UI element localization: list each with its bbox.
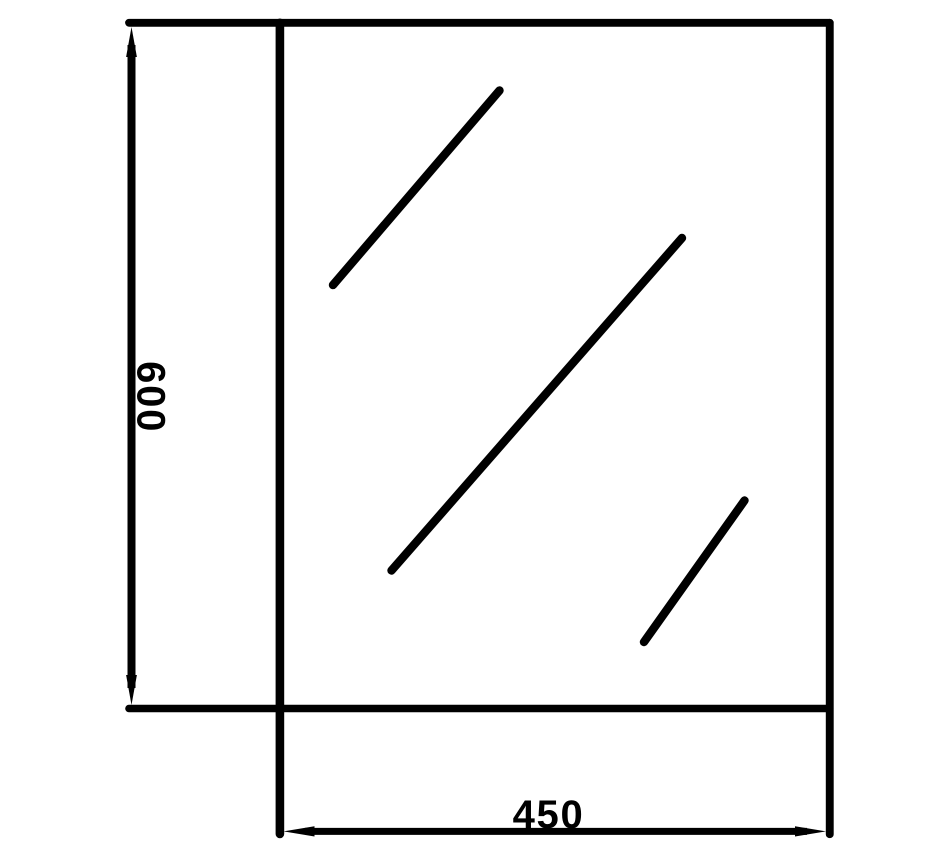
- svg-text:450: 450: [513, 793, 585, 837]
- svg-text:600: 600: [129, 361, 173, 433]
